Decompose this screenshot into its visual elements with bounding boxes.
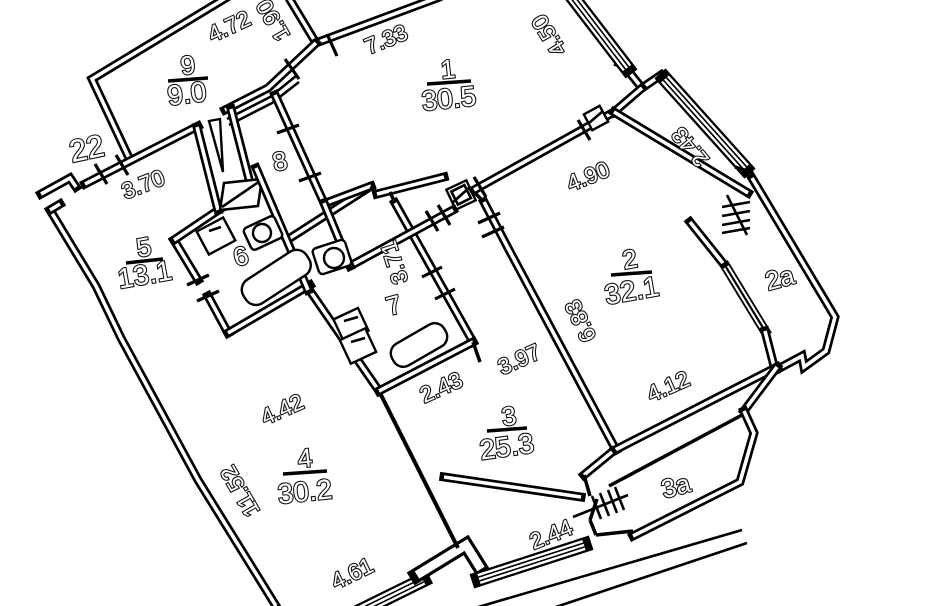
svg-text:30.2: 30.2 [276, 473, 333, 510]
svg-text:22: 22 [66, 128, 107, 169]
svg-text:30.5: 30.5 [420, 80, 477, 117]
svg-text:9.0: 9.0 [166, 76, 208, 112]
